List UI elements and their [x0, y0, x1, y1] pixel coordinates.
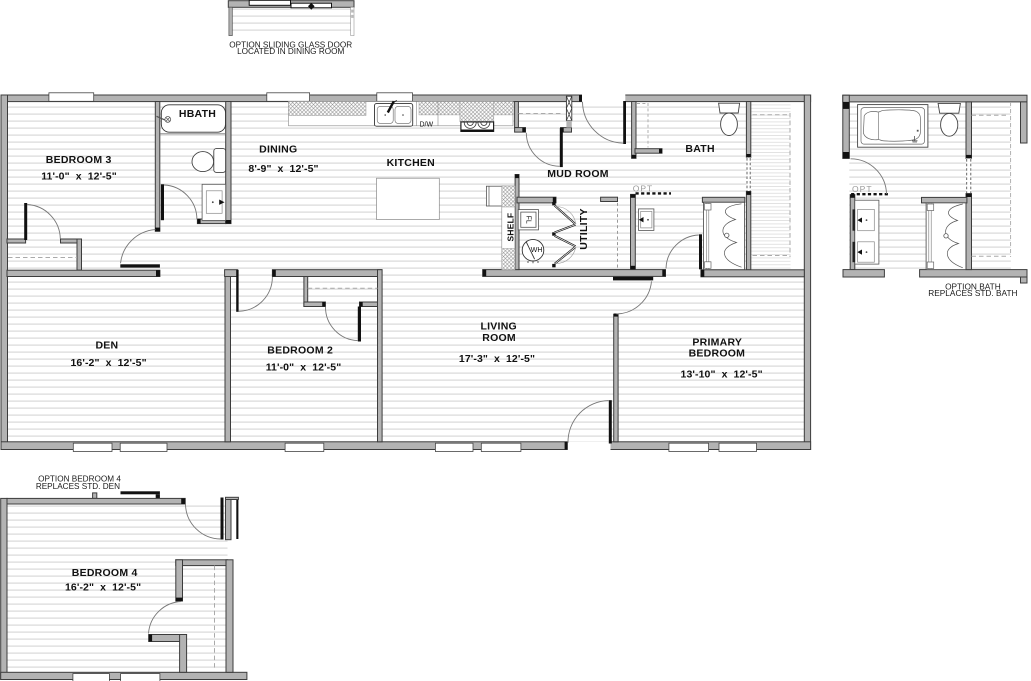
- svg-text:DINING: DINING: [259, 143, 297, 155]
- svg-text:16'-2" x 12'-5": 16'-2" x 12'-5": [70, 357, 146, 369]
- svg-text:11'-0" x 12'-5": 11'-0" x 12'-5": [41, 170, 117, 182]
- svg-text:REPLACES STD. BATH: REPLACES STD. BATH: [928, 288, 1017, 298]
- svg-text:UTILITY: UTILITY: [578, 208, 590, 249]
- svg-text:OPT: OPT: [852, 184, 872, 194]
- svg-text:ROOM: ROOM: [482, 332, 516, 344]
- svg-text:16'-2" x 12'-5": 16'-2" x 12'-5": [65, 582, 141, 594]
- svg-text:BEDROOM 3: BEDROOM 3: [46, 154, 112, 166]
- svg-text:13'-10" x 12'-5": 13'-10" x 12'-5": [681, 368, 763, 380]
- svg-text:SHELF: SHELF: [506, 213, 516, 242]
- svg-text:FL: FL: [525, 216, 532, 224]
- svg-text:MUD ROOM: MUD ROOM: [547, 168, 609, 180]
- svg-text:DEN: DEN: [95, 340, 118, 352]
- svg-text:BATH: BATH: [685, 143, 714, 155]
- svg-text:WH: WH: [531, 247, 543, 254]
- svg-text:REPLACES STD. DEN: REPLACES STD. DEN: [36, 482, 120, 491]
- svg-text:D/W: D/W: [420, 122, 434, 129]
- svg-text:KITCHEN: KITCHEN: [387, 157, 435, 169]
- svg-text:LIVING: LIVING: [480, 320, 517, 332]
- svg-text:BEDROOM 4: BEDROOM 4: [72, 567, 138, 579]
- svg-text:LOCATED IN DINING ROOM: LOCATED IN DINING ROOM: [237, 47, 344, 56]
- svg-text:11'-0" x 12'-5": 11'-0" x 12'-5": [266, 362, 342, 374]
- svg-text:8'-9" x 12'-5": 8'-9" x 12'-5": [248, 163, 318, 175]
- svg-text:OPT: OPT: [633, 184, 653, 194]
- svg-text:HBATH: HBATH: [179, 108, 216, 120]
- svg-text:BEDROOM: BEDROOM: [689, 347, 746, 359]
- svg-text:BEDROOM 2: BEDROOM 2: [267, 345, 333, 357]
- svg-text:17'-3" x 12'-5": 17'-3" x 12'-5": [459, 353, 535, 365]
